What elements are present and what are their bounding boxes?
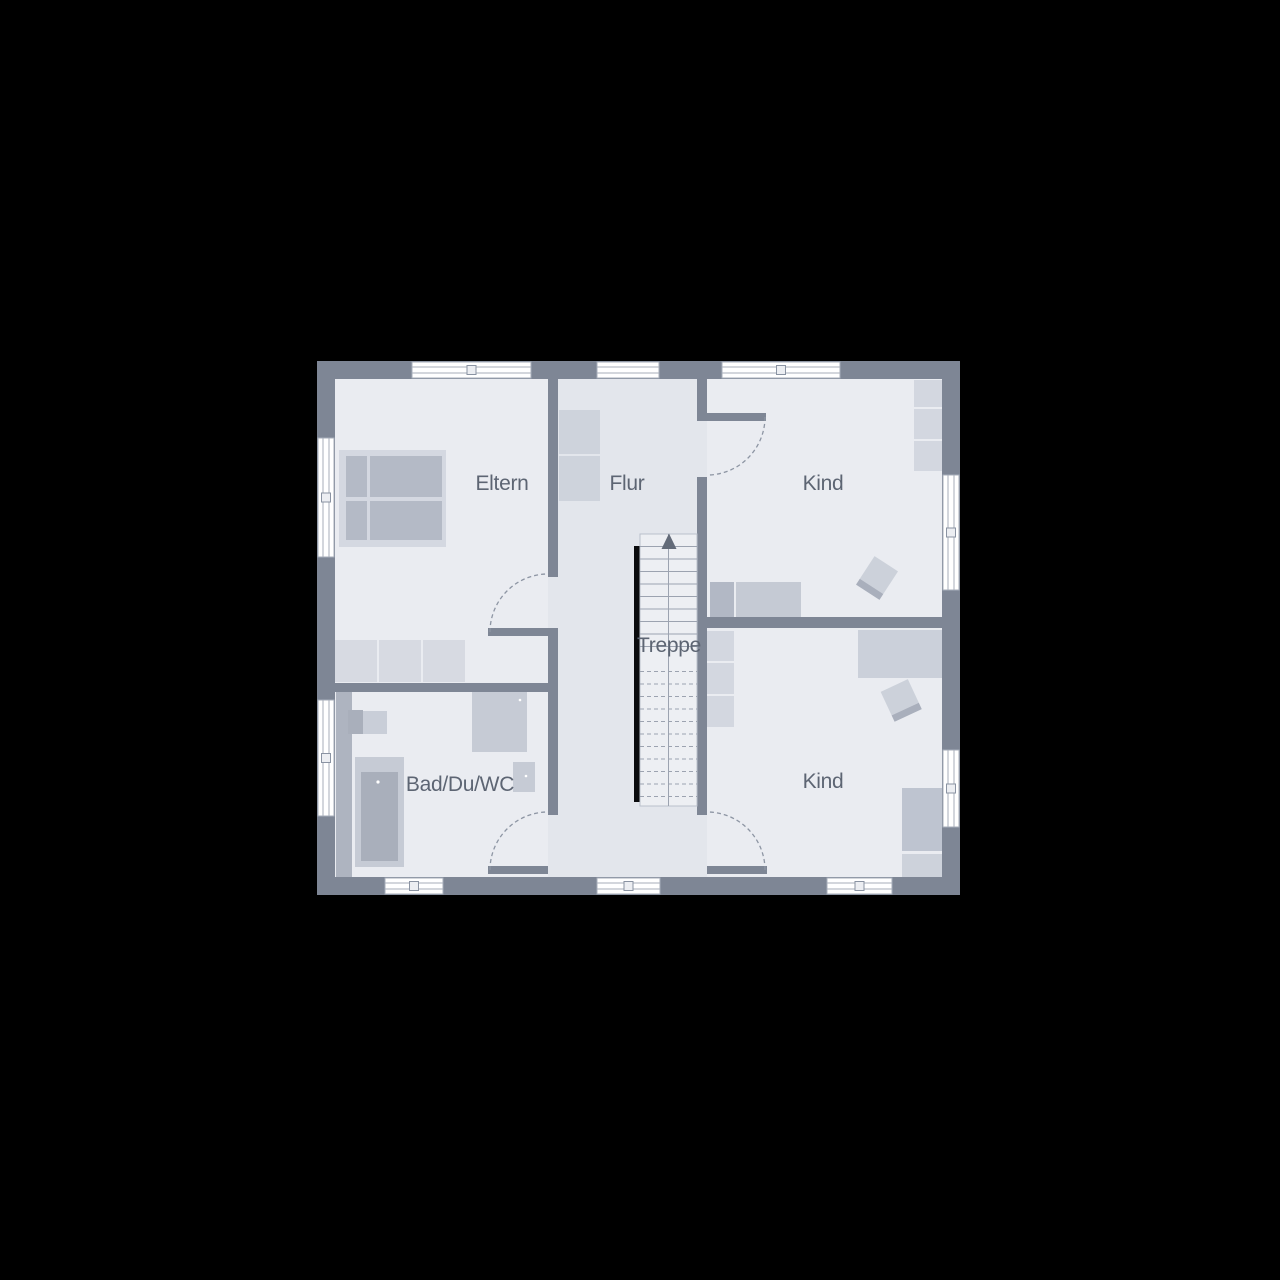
toilet (513, 762, 535, 792)
shower (472, 692, 527, 752)
window-handle (322, 754, 331, 763)
window-handle (947, 528, 956, 537)
toilet-dot (525, 775, 528, 778)
stair-handrail (634, 546, 640, 802)
bed-pillow (902, 854, 942, 877)
window (412, 362, 531, 378)
bed-pillow (346, 501, 367, 540)
window-handle (777, 366, 786, 375)
door-opening-kind-bottom (697, 815, 707, 877)
window (597, 878, 660, 894)
bathtub-basin (361, 772, 398, 861)
shower-tray (472, 692, 527, 752)
room-label-flur: Flur (610, 472, 645, 495)
window (943, 750, 959, 827)
window (318, 438, 334, 557)
wardrobe-segment (335, 640, 377, 682)
washbasin-counter (363, 711, 387, 734)
room-label-bad: Bad/Du/WC (406, 773, 514, 796)
window (827, 878, 892, 894)
desk (858, 630, 942, 678)
room-label-eltern: Eltern (475, 472, 528, 495)
bed-pillow (710, 582, 734, 617)
staircase (634, 534, 697, 807)
window (722, 362, 840, 378)
shower-head-dot (519, 699, 522, 702)
door-opening-bad (548, 815, 558, 877)
bed-mattress (370, 501, 442, 540)
window-handle (410, 882, 419, 891)
wardrobe-segment (707, 631, 734, 661)
window-handle (322, 493, 331, 502)
door-leaf-kind-bottom (707, 866, 767, 874)
wardrobe (914, 380, 942, 471)
door-opening-kind-top (697, 421, 707, 477)
double-bed (339, 450, 446, 547)
washbasin (348, 710, 363, 734)
wardrobe-segment (914, 380, 942, 407)
drain-dot (376, 780, 379, 783)
door-leaf-bad (488, 866, 548, 874)
room-label-kind-top: Kind (803, 472, 844, 495)
bathtub (355, 757, 404, 867)
window (943, 475, 959, 590)
shelf-segment (559, 410, 600, 454)
bed-pillow (346, 456, 367, 497)
wardrobe-segment (914, 409, 942, 439)
wardrobe-segment (707, 696, 734, 727)
window (385, 878, 443, 894)
wardrobe-segment (914, 441, 942, 471)
window-handle (467, 366, 476, 375)
wardrobe (707, 631, 734, 727)
wardrobe-segment (707, 663, 734, 694)
single-bed (902, 788, 942, 877)
door-leaf-kind-top (707, 413, 766, 421)
window-handle (947, 784, 956, 793)
window (597, 362, 659, 378)
bed-mattress (902, 788, 942, 851)
room-label-kind-bottom: Kind (803, 770, 844, 793)
toilet-body (513, 762, 535, 792)
single-bed (710, 582, 801, 617)
window (318, 700, 334, 816)
window-handle (855, 882, 864, 891)
wardrobe-segment (423, 640, 465, 682)
bed-mattress (736, 582, 801, 617)
door-leaf-eltern (488, 628, 548, 636)
floor-plan-canvas: Eltern Flur Kind Treppe Bad/Du/WC Kind (0, 0, 1280, 1280)
door-opening-eltern (548, 577, 558, 628)
shelf-segment (559, 456, 600, 501)
room-label-treppe: Treppe (637, 634, 701, 657)
bed-mattress (370, 456, 442, 497)
wardrobe (335, 640, 465, 682)
wardrobe-segment (379, 640, 421, 682)
window-handle (624, 882, 633, 891)
